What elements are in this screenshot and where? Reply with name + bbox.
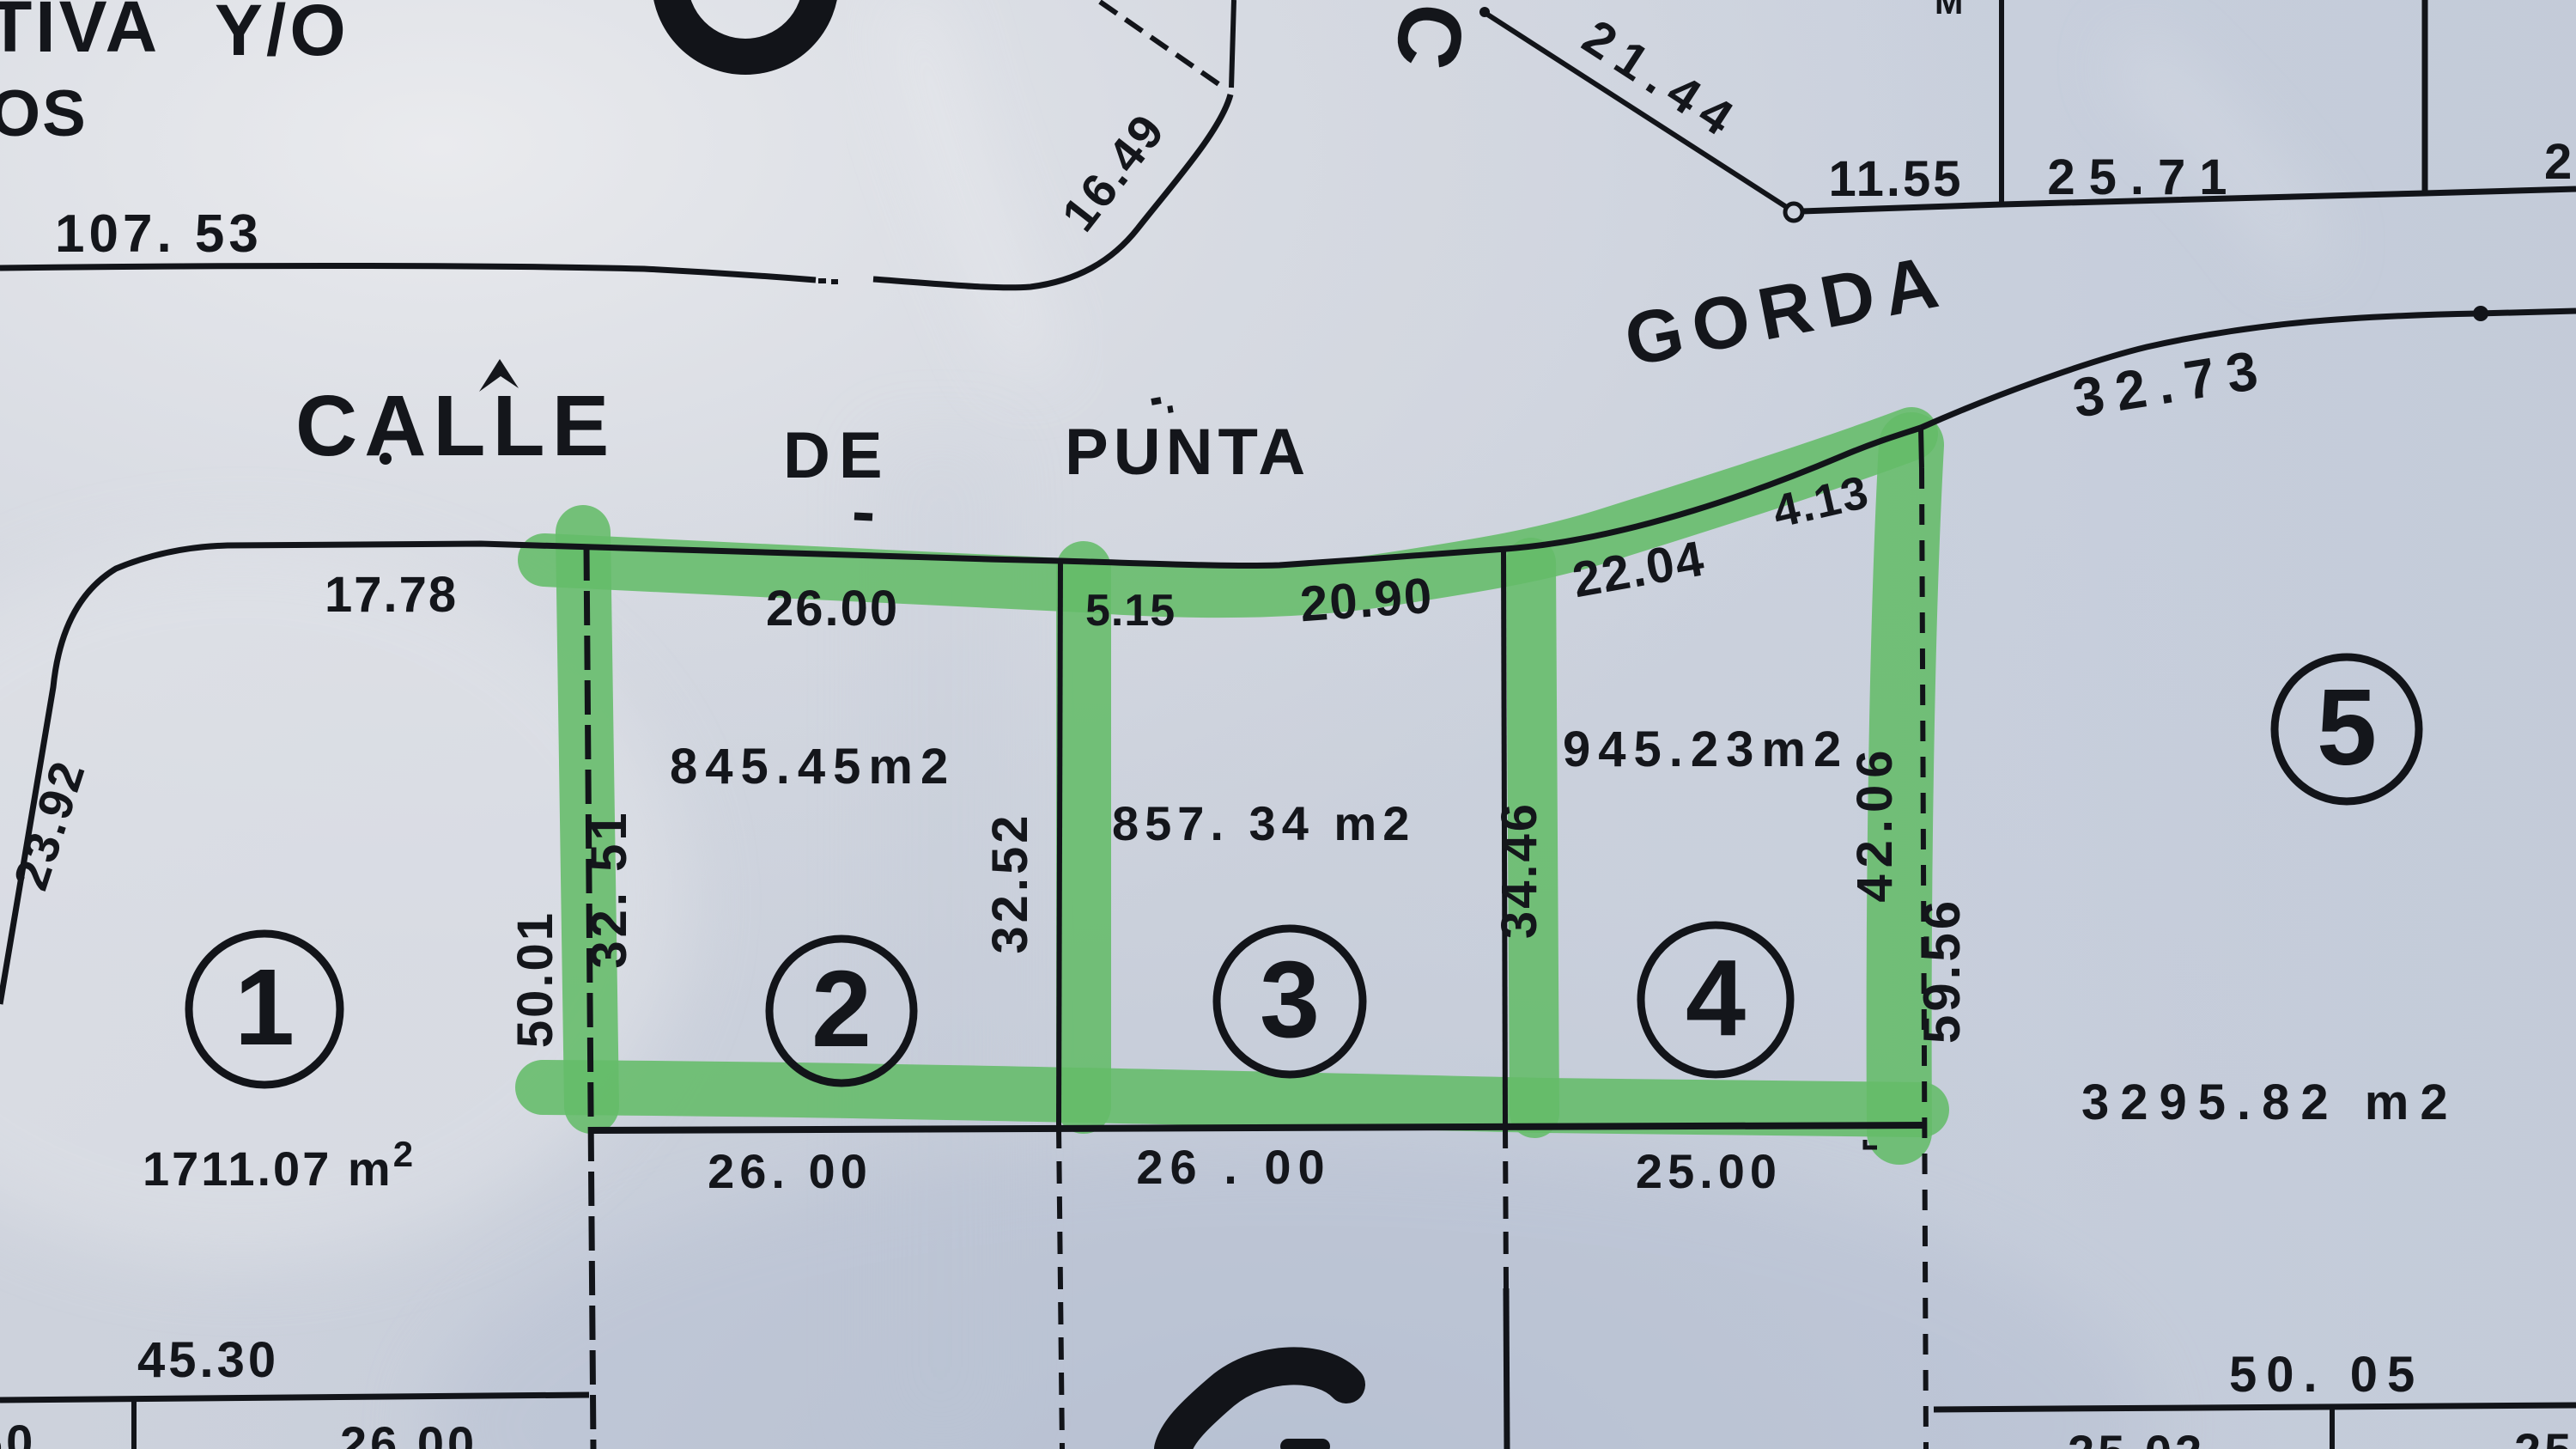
svg-text:PUNTA: PUNTA [1065, 416, 1310, 489]
svg-text:845.45m2: 845.45m2 [670, 739, 956, 795]
svg-text:3295.82 m2: 3295.82 m2 [2081, 1075, 2459, 1130]
svg-text:45.30: 45.30 [137, 1332, 279, 1388]
svg-text:25.00: 25.00 [1636, 1144, 1782, 1198]
svg-text:5: 5 [2317, 667, 2377, 788]
svg-text:2: 2 [811, 948, 872, 1069]
svg-text:11.55: 11.55 [1829, 151, 1964, 207]
svg-text:60: 60 [0, 1415, 36, 1449]
svg-text:32. 51: 32. 51 [581, 809, 637, 968]
svg-text:M: M [1935, 0, 1963, 21]
svg-text:Y/O: Y/O [215, 0, 349, 70]
svg-text:5.15: 5.15 [1085, 586, 1176, 636]
svg-text:DE: DE [783, 419, 891, 492]
svg-text:59.56: 59.56 [1913, 898, 1971, 1044]
svg-text:4: 4 [1686, 937, 1746, 1058]
svg-text:1711.07 m2: 1711.07 m2 [143, 1134, 416, 1196]
svg-text:26.00: 26.00 [766, 581, 899, 636]
svg-text:3: 3 [1260, 939, 1320, 1060]
svg-text:20.90: 20.90 [1298, 568, 1435, 633]
svg-text:17.78: 17.78 [325, 567, 458, 623]
svg-text:25: 25 [2544, 134, 2576, 190]
svg-text:42.06: 42.06 [1847, 743, 1903, 902]
svg-text:25.0: 25.0 [2514, 1423, 2576, 1449]
svg-text:26. 00: 26. 00 [708, 1144, 872, 1198]
svg-text:TIVA: TIVA [0, 0, 161, 67]
svg-text:OS: OS [0, 77, 88, 150]
svg-text:50.01: 50.01 [507, 910, 563, 1048]
svg-text:107. 53: 107. 53 [55, 204, 263, 264]
svg-text:34.46: 34.46 [1492, 801, 1547, 939]
svg-text:32.52: 32.52 [982, 812, 1038, 953]
svg-text:945.23m2: 945.23m2 [1563, 721, 1849, 777]
svg-text:25.02: 25.02 [2068, 1425, 2205, 1449]
svg-text:25.71: 25.71 [2047, 149, 2240, 205]
svg-text:857. 34 m2: 857. 34 m2 [1112, 796, 1415, 850]
svg-text:26 . 00: 26 . 00 [1136, 1140, 1331, 1194]
svg-text:CALLE: CALLE [295, 378, 616, 474]
svg-text:26.00: 26.00 [340, 1416, 477, 1449]
svg-text:50. 05: 50. 05 [2229, 1347, 2424, 1403]
svg-text:1: 1 [234, 947, 295, 1068]
